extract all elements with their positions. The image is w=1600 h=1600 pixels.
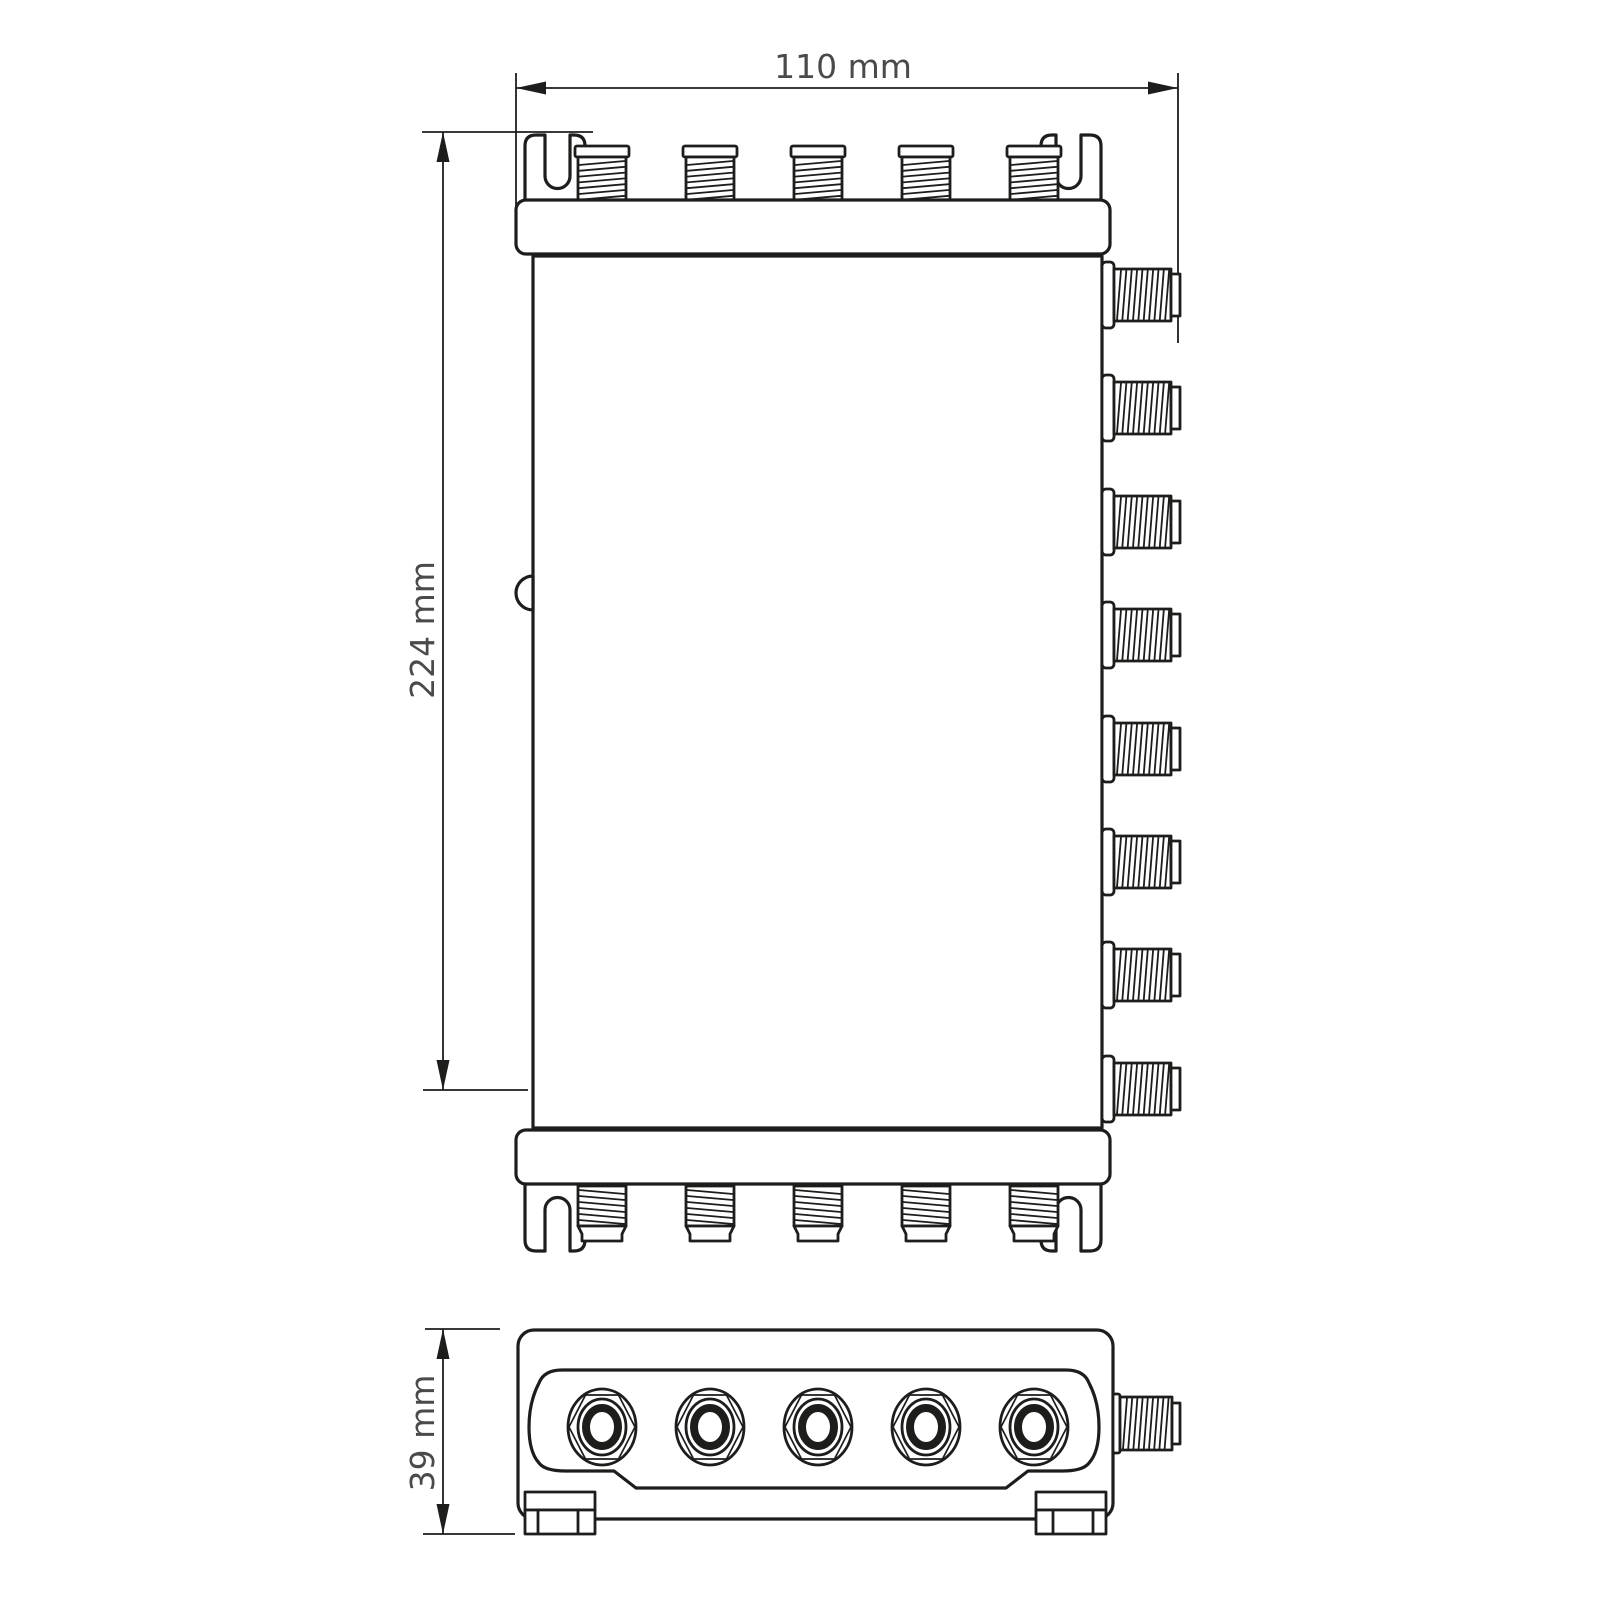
side-connector bbox=[1102, 829, 1180, 895]
connector-center-ring bbox=[694, 1408, 726, 1446]
right-foot-lower bbox=[1036, 1510, 1106, 1534]
end-connector-face bbox=[1000, 1389, 1068, 1465]
connector-cap bbox=[683, 146, 737, 157]
connector-center-ring bbox=[910, 1408, 942, 1446]
connector-tip bbox=[686, 1226, 734, 1241]
connector-flange bbox=[1102, 375, 1114, 441]
arrowhead-right-icon bbox=[1148, 82, 1178, 95]
connector-tip bbox=[1171, 614, 1180, 656]
depth-dimension: 39 mm bbox=[403, 1329, 515, 1534]
dimension-drawing: 110 mm 224 mm bbox=[0, 0, 1600, 1600]
top-connector bbox=[575, 146, 629, 202]
connector-cap bbox=[899, 146, 953, 157]
side-grommet-bump bbox=[516, 576, 533, 610]
connector-tip bbox=[1171, 954, 1180, 996]
bottom-connector bbox=[1010, 1186, 1058, 1241]
side-connector bbox=[1102, 489, 1180, 555]
connector-flange bbox=[1102, 489, 1114, 555]
bottom-connector bbox=[578, 1186, 626, 1241]
end-connector-face bbox=[676, 1389, 744, 1465]
connector-tip bbox=[902, 1226, 950, 1241]
connector-tip bbox=[1172, 1403, 1180, 1444]
connector-tip bbox=[578, 1226, 626, 1241]
connector-cap bbox=[791, 146, 845, 157]
end-side-connector bbox=[1113, 1394, 1180, 1453]
connector-flange bbox=[1102, 716, 1114, 782]
side-connector bbox=[1102, 602, 1180, 668]
end-side-connector-body bbox=[1113, 1394, 1180, 1453]
end-connector-face bbox=[784, 1389, 852, 1465]
side-connector bbox=[1102, 375, 1180, 441]
top-connector bbox=[683, 146, 737, 202]
connector-flange bbox=[1102, 602, 1114, 668]
bottom-connector bbox=[902, 1186, 950, 1241]
left-foot-upper bbox=[525, 1492, 595, 1510]
arrowhead-up-icon bbox=[437, 1329, 450, 1359]
bottom-left-mounting-lug bbox=[525, 1183, 585, 1251]
connector-flange bbox=[1102, 829, 1114, 895]
bottom-connector bbox=[686, 1186, 734, 1241]
depth-dimension-label: 39 mm bbox=[403, 1375, 442, 1492]
left-foot-lower bbox=[525, 1510, 595, 1534]
top-connector bbox=[791, 146, 845, 202]
connector-tip bbox=[1171, 501, 1180, 543]
bottom-connector bbox=[794, 1186, 842, 1241]
connector-center-ring bbox=[1018, 1408, 1050, 1446]
end-connector-face bbox=[892, 1389, 960, 1465]
bottom-connectors bbox=[578, 1186, 1058, 1241]
connector-tip bbox=[1171, 728, 1180, 770]
side-connector bbox=[1102, 942, 1180, 1008]
connector-tip bbox=[794, 1226, 842, 1241]
side-connectors bbox=[1102, 262, 1180, 1122]
top-connector bbox=[899, 146, 953, 202]
connector-center-ring bbox=[802, 1408, 834, 1446]
right-foot-upper bbox=[1036, 1492, 1106, 1510]
width-dimension-label: 110 mm bbox=[774, 47, 912, 86]
connector-center-ring bbox=[586, 1408, 618, 1446]
technical-drawing-canvas: 110 mm 224 mm bbox=[0, 0, 1600, 1600]
arrowhead-down-icon bbox=[437, 1060, 450, 1090]
connector-cap bbox=[575, 146, 629, 157]
end-connector-face bbox=[568, 1389, 636, 1465]
connector-flange bbox=[1102, 942, 1114, 1008]
connector-flange bbox=[1102, 262, 1114, 328]
connector-tip bbox=[1171, 1068, 1180, 1110]
front-view: 110 mm 224 mm bbox=[403, 47, 1180, 1251]
connector-tip bbox=[1010, 1226, 1058, 1241]
bottom-end-cap bbox=[516, 1130, 1110, 1184]
arrowhead-down-icon bbox=[437, 1504, 450, 1534]
top-connector bbox=[1007, 146, 1061, 202]
end-view: 39 mm bbox=[403, 1329, 1180, 1534]
height-dimension-label: 224 mm bbox=[403, 561, 442, 699]
side-connector bbox=[1102, 1056, 1180, 1122]
side-connector bbox=[1102, 716, 1180, 782]
arrowhead-up-icon bbox=[437, 132, 450, 162]
connector-tip bbox=[1171, 841, 1180, 883]
top-connectors bbox=[575, 146, 1061, 202]
side-connector bbox=[1102, 262, 1180, 328]
connector-tip bbox=[1171, 387, 1180, 429]
housing-body bbox=[533, 256, 1102, 1128]
top-end-cap bbox=[516, 200, 1110, 254]
connector-flange bbox=[1102, 1056, 1114, 1122]
connector-tip bbox=[1171, 274, 1180, 316]
connector-cap bbox=[1007, 146, 1061, 157]
arrowhead-left-icon bbox=[516, 82, 546, 95]
